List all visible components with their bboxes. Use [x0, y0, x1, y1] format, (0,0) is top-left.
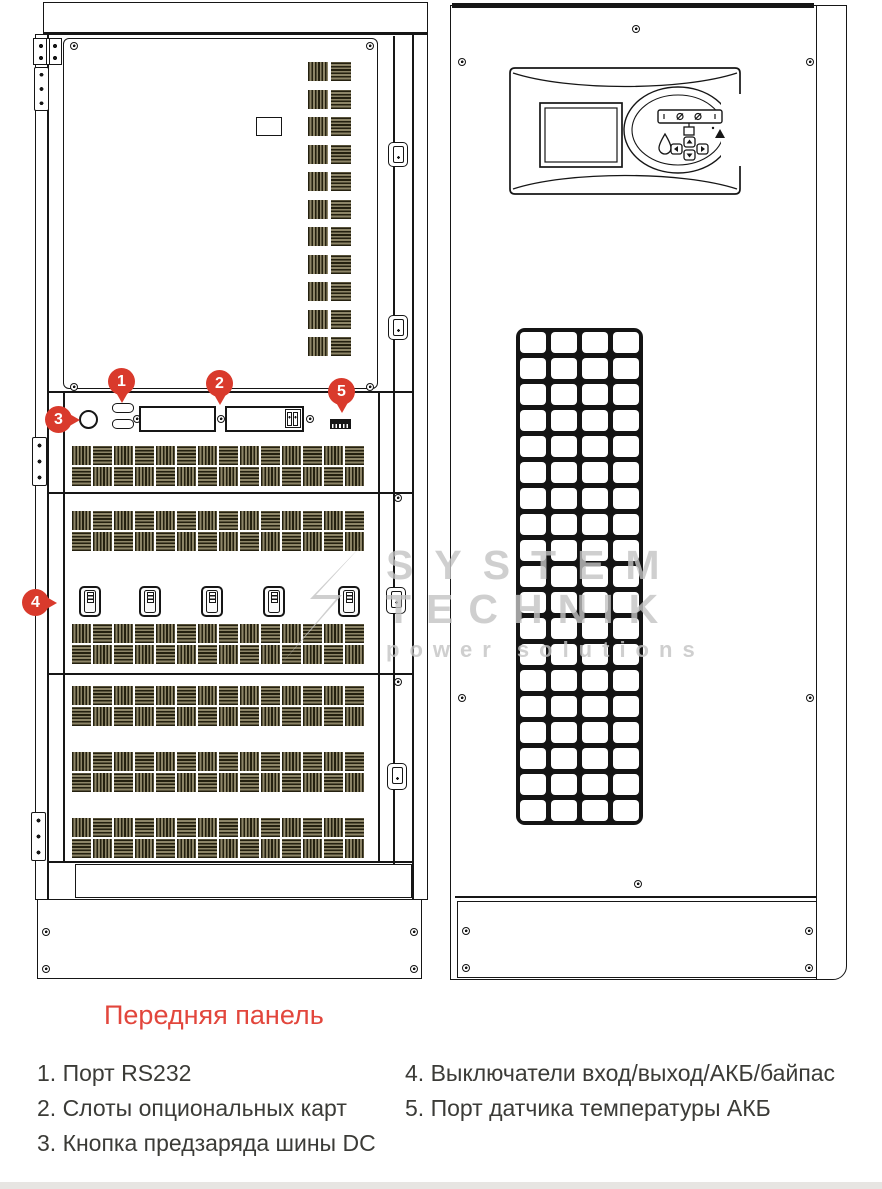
vent-cell [324, 818, 343, 837]
vent-cell [72, 645, 91, 664]
door-latch-4 [387, 763, 407, 790]
grille-hole [520, 332, 546, 353]
vent-cell [93, 773, 112, 792]
grille-hole [582, 644, 608, 665]
front-panel-diagram: SYSTEM TECHNIK power solutions 1 2 3 4 5… [0, 0, 882, 1189]
vent-cell [135, 686, 154, 705]
vent-cell [308, 62, 328, 81]
breaker-switch-4 [263, 586, 285, 617]
grille-hole [613, 436, 639, 457]
screw [366, 42, 374, 50]
grille-hole [613, 800, 639, 821]
vent-cell [240, 624, 259, 643]
grille-hole [613, 410, 639, 431]
vent-cell [114, 839, 133, 858]
vent-cell [345, 645, 364, 664]
grille-hole [582, 748, 608, 769]
grille-hole [613, 462, 639, 483]
grille-hole [551, 514, 577, 535]
breaker-switch-5 [338, 586, 360, 617]
screw [458, 58, 466, 66]
vent-cell [308, 227, 328, 246]
vent-cell [331, 310, 351, 329]
vent-cell [72, 773, 91, 792]
vent-strip [72, 818, 364, 858]
grille-hole [582, 488, 608, 509]
grille-hole [551, 566, 577, 587]
vent-cell [177, 446, 196, 465]
vent-cell [324, 707, 343, 726]
vent-cell [135, 467, 154, 486]
vent-cell [303, 511, 322, 530]
vent-cell [156, 446, 175, 465]
vent-cell [303, 532, 322, 551]
grille-hole [551, 358, 577, 379]
grille-hole [613, 696, 639, 717]
left-cabinet-step [75, 864, 412, 898]
vent-cell [135, 624, 154, 643]
vent-cell [324, 839, 343, 858]
callout-pin-2: 2 [206, 370, 233, 397]
grille-hole [582, 436, 608, 457]
legend-column-1: 1. Порт RS232 2. Слоты опциональных карт… [37, 1056, 376, 1161]
vent-cell [261, 752, 280, 771]
grille-hole [520, 436, 546, 457]
left-cabinet-side-strip [413, 34, 428, 900]
battery-temp-sensor-port [330, 419, 351, 429]
grille-hole [551, 748, 577, 769]
screw [394, 678, 402, 686]
vent-cell [282, 511, 301, 530]
screw [462, 927, 470, 935]
vent-cell [156, 686, 175, 705]
grille-hole [582, 670, 608, 691]
vent-cell [219, 839, 238, 858]
grille-hole [613, 358, 639, 379]
vent-cell [72, 446, 91, 465]
vent-cell [156, 624, 175, 643]
vent-cell [303, 645, 322, 664]
grille-hole [582, 462, 608, 483]
vent-cell [93, 839, 112, 858]
vent-cell [156, 752, 175, 771]
right-cabinet-side-panel [816, 5, 847, 980]
vent-cell [331, 200, 351, 219]
vent-cell [282, 818, 301, 837]
vent-cell [261, 446, 280, 465]
grille-hole [520, 774, 546, 795]
screw [805, 964, 813, 972]
grille-hole [520, 410, 546, 431]
vent-strip [72, 752, 364, 792]
vent-cell [308, 90, 328, 109]
option-card-slot-2 [225, 406, 304, 432]
vent-cell [219, 467, 238, 486]
grille-hole [582, 358, 608, 379]
vent-cell [156, 532, 175, 551]
vent-cell [282, 467, 301, 486]
screw [70, 383, 78, 391]
vent-cell [345, 511, 364, 530]
door-latch-3 [386, 587, 406, 614]
vent-cell [308, 200, 328, 219]
vent-cell [177, 645, 196, 664]
vent-cell [303, 752, 322, 771]
screw [805, 927, 813, 935]
legend-item-1: 1. Порт RS232 [37, 1056, 376, 1091]
left-cabinet-top-cap [43, 2, 428, 35]
grille-hole [582, 774, 608, 795]
vent-cell [331, 90, 351, 109]
vent-cell [93, 645, 112, 664]
grille-hole [613, 332, 639, 353]
grille-hole [551, 774, 577, 795]
vent-cell [282, 707, 301, 726]
vent-cell [282, 532, 301, 551]
grille-hole [582, 592, 608, 613]
grille-hole [613, 722, 639, 743]
screw [306, 415, 314, 423]
vent-cell [135, 773, 154, 792]
rs232-port-upper [112, 403, 134, 413]
vent-cell [282, 773, 301, 792]
vent-cell [156, 839, 175, 858]
door-left-edge [63, 392, 65, 861]
legend-column-2: 4. Выключатели вход/выход/АКБ/байпас 5. … [405, 1056, 835, 1126]
vent-cell [93, 624, 112, 643]
vent-cell [345, 707, 364, 726]
vent-cell [331, 255, 351, 274]
dc-precharge-button [79, 410, 98, 429]
legend-item-2: 2. Слоты опциональных карт [37, 1091, 376, 1126]
vent-cell [135, 818, 154, 837]
vent-cell [114, 773, 133, 792]
section-line-2 [48, 492, 413, 494]
vent-cell [261, 839, 280, 858]
option-card-slot-1 [139, 406, 216, 432]
vent-cell [93, 818, 112, 837]
diagram-title: Передняя панель [104, 1000, 324, 1031]
legend-item-4: 4. Выключатели вход/выход/АКБ/байпас [405, 1056, 835, 1091]
right-cabinet-base [457, 901, 817, 978]
vent-cell [114, 624, 133, 643]
vent-cell [331, 282, 351, 301]
grille-hole [551, 462, 577, 483]
vent-cell [240, 532, 259, 551]
grille-hole [582, 332, 608, 353]
door-bracket-bottom [31, 812, 46, 861]
grille-hole [551, 670, 577, 691]
vent-cell [219, 773, 238, 792]
vent-cell [114, 707, 133, 726]
door-hinge-top [33, 38, 62, 65]
vent-cell [324, 645, 343, 664]
vent-cell [114, 446, 133, 465]
grille-hole [520, 462, 546, 483]
vent-cell [345, 752, 364, 771]
vent-cell [324, 624, 343, 643]
vent-cell [93, 752, 112, 771]
grille-hole [520, 358, 546, 379]
vent-cell [219, 686, 238, 705]
grille-hole [613, 384, 639, 405]
vent-cell [345, 686, 364, 705]
vent-strip [72, 624, 364, 664]
vent-cell [72, 624, 91, 643]
vent-cell [240, 686, 259, 705]
grille-hole [551, 488, 577, 509]
vent-cell [240, 446, 259, 465]
left-cabinet-base [37, 899, 422, 979]
vent-cell [308, 117, 328, 136]
vent-cell [261, 467, 280, 486]
callout-pin-1: 1 [108, 368, 135, 395]
vent-cell [261, 532, 280, 551]
vent-cell [177, 839, 196, 858]
screw [462, 964, 470, 972]
grille-hole [613, 566, 639, 587]
vent-cell [345, 446, 364, 465]
vent-cell [93, 532, 112, 551]
grille-hole [520, 800, 546, 821]
grille-hole [551, 592, 577, 613]
vent-cell [198, 446, 217, 465]
vent-cell [72, 511, 91, 530]
vent-cell [240, 645, 259, 664]
vent-cell [308, 282, 328, 301]
grille-hole [613, 514, 639, 535]
breaker-switch-1 [79, 586, 101, 617]
vent-cell [198, 707, 217, 726]
vent-cell [135, 839, 154, 858]
grille-hole [520, 488, 546, 509]
screw [634, 880, 642, 888]
vent-cell [303, 686, 322, 705]
vent-cell [114, 686, 133, 705]
vent-cell [72, 686, 91, 705]
vent-cell [198, 686, 217, 705]
vent-cell [177, 818, 196, 837]
vent-cell [198, 818, 217, 837]
vent-strip [72, 686, 364, 726]
vent-cell [135, 645, 154, 664]
grille-hole [551, 384, 577, 405]
screw [458, 694, 466, 702]
vent-cell [308, 337, 328, 356]
vent-cell [261, 511, 280, 530]
vent-cell [240, 752, 259, 771]
vent-cell [282, 645, 301, 664]
grille-hole [551, 436, 577, 457]
vent-cell [345, 532, 364, 551]
vent-cell [114, 752, 133, 771]
control-panel [508, 66, 742, 196]
door-latch-2 [388, 315, 408, 340]
grille-hole [613, 488, 639, 509]
door-label-plate [256, 117, 282, 136]
grille-hole [520, 644, 546, 665]
legend-item-5: 5. Порт датчика температуры АКБ [405, 1091, 835, 1126]
vent-cell [72, 839, 91, 858]
door-vent-column [308, 62, 351, 356]
right-cabinet-top-bar [452, 3, 814, 8]
vent-cell [135, 707, 154, 726]
vent-cell [135, 532, 154, 551]
ventilation-grille [516, 328, 643, 825]
grille-hole [582, 618, 608, 639]
vent-cell [308, 145, 328, 164]
screw [806, 58, 814, 66]
vent-cell [93, 686, 112, 705]
callout-pin-3: 3 [45, 406, 72, 433]
grille-hole [613, 748, 639, 769]
vent-cell [177, 773, 196, 792]
vent-cell [198, 467, 217, 486]
vent-cell [324, 511, 343, 530]
vent-cell [219, 645, 238, 664]
door-right-edge [378, 392, 380, 861]
vent-cell [177, 707, 196, 726]
vent-cell [303, 624, 322, 643]
vent-cell [114, 467, 133, 486]
led-indicator-bar [658, 110, 722, 123]
vent-cell [282, 624, 301, 643]
vent-cell [303, 839, 322, 858]
grille-hole [613, 540, 639, 561]
vent-cell [219, 532, 238, 551]
grille-hole [520, 592, 546, 613]
vent-cell [331, 227, 351, 246]
vent-cell [324, 467, 343, 486]
grille-hole [551, 800, 577, 821]
vent-cell [345, 624, 364, 643]
vent-cell [282, 839, 301, 858]
vent-cell [156, 645, 175, 664]
grille-hole [520, 618, 546, 639]
grille-hole [520, 670, 546, 691]
vent-cell [198, 532, 217, 551]
vent-cell [93, 446, 112, 465]
screw [42, 928, 50, 936]
vent-strip [72, 446, 364, 486]
vent-cell [345, 839, 364, 858]
grille-hole [551, 540, 577, 561]
vent-cell [308, 172, 328, 191]
vent-cell [93, 707, 112, 726]
vent-cell [331, 145, 351, 164]
vent-cell [331, 172, 351, 191]
vent-cell [282, 686, 301, 705]
grille-hole [613, 618, 639, 639]
grille-hole [520, 696, 546, 717]
terminal-block [285, 409, 301, 428]
vent-cell [114, 532, 133, 551]
door-bracket-middle [32, 437, 47, 486]
vent-cell [261, 645, 280, 664]
vent-cell [72, 532, 91, 551]
callout-pin-5: 5 [328, 378, 355, 405]
vent-cell [240, 467, 259, 486]
vent-cell [345, 818, 364, 837]
vent-cell [324, 686, 343, 705]
grille-hole [551, 410, 577, 431]
grille-hole [551, 696, 577, 717]
vent-cell [331, 337, 351, 356]
grille-hole [582, 696, 608, 717]
breaker-switch-3 [201, 586, 223, 617]
grille-hole [520, 566, 546, 587]
vent-cell [72, 467, 91, 486]
vent-cell [345, 773, 364, 792]
screw [410, 928, 418, 936]
vent-cell [177, 467, 196, 486]
vent-cell [114, 818, 133, 837]
vent-cell [198, 773, 217, 792]
grille-hole [582, 514, 608, 535]
grille-hole [613, 644, 639, 665]
vent-cell [303, 773, 322, 792]
grille-hole [582, 722, 608, 743]
vent-cell [261, 773, 280, 792]
vent-cell [331, 117, 351, 136]
screw [42, 965, 50, 973]
grille-hole [582, 410, 608, 431]
vent-cell [324, 773, 343, 792]
vent-cell [198, 624, 217, 643]
vent-cell [72, 752, 91, 771]
grille-hole [520, 748, 546, 769]
callout-pin-4: 4 [22, 589, 49, 616]
vent-cell [156, 511, 175, 530]
grille-hole [582, 540, 608, 561]
screw [410, 965, 418, 973]
vent-cell [198, 645, 217, 664]
lcd-screen [545, 108, 617, 162]
screw [366, 383, 374, 391]
vent-cell [198, 752, 217, 771]
vent-cell [219, 818, 238, 837]
vent-cell [240, 818, 259, 837]
door-latch-1 [388, 142, 408, 167]
vent-cell [114, 645, 133, 664]
vent-cell [135, 446, 154, 465]
grille-hole [520, 514, 546, 535]
vent-cell [177, 532, 196, 551]
grille-hole [551, 332, 577, 353]
vent-cell [198, 511, 217, 530]
vent-cell [303, 467, 322, 486]
grille-hole [613, 774, 639, 795]
vent-cell [219, 624, 238, 643]
vent-cell [261, 624, 280, 643]
screw [806, 694, 814, 702]
screw [70, 42, 78, 50]
vent-cell [240, 773, 259, 792]
vent-cell [156, 773, 175, 792]
vent-cell [219, 752, 238, 771]
vent-cell [261, 707, 280, 726]
vent-cell [282, 752, 301, 771]
vent-cell [219, 707, 238, 726]
vent-cell [240, 707, 259, 726]
vent-cell [177, 686, 196, 705]
legend-item-3: 3. Кнопка предзаряда шины DC [37, 1126, 376, 1161]
vent-cell [156, 818, 175, 837]
vent-cell [324, 446, 343, 465]
grille-hole [613, 592, 639, 613]
door-bottom-line [48, 861, 413, 863]
vent-cell [219, 446, 238, 465]
